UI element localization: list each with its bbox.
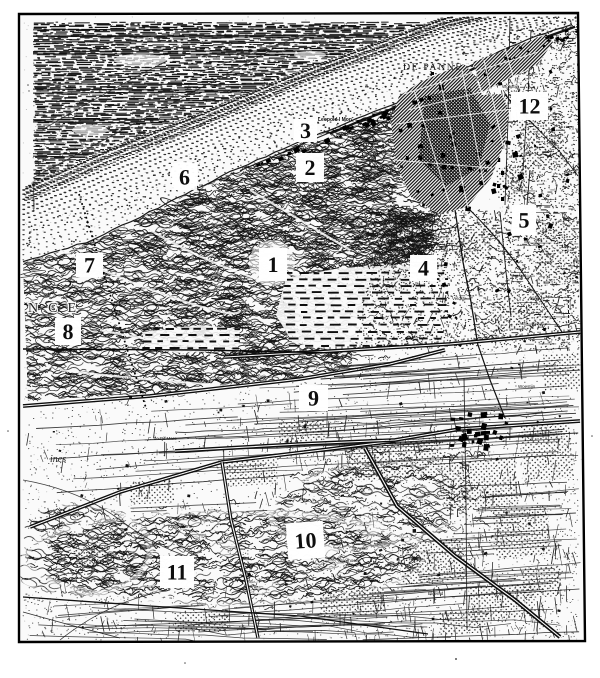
svg-text:8: 8 xyxy=(62,319,73,344)
svg-text:7: 7 xyxy=(84,252,95,277)
svg-text:1: 1 xyxy=(267,252,278,277)
svg-text:12: 12 xyxy=(518,93,540,118)
svg-text:4: 4 xyxy=(418,255,429,280)
svg-text:6: 6 xyxy=(179,164,190,189)
svg-text:9: 9 xyxy=(308,385,319,410)
svg-text:2: 2 xyxy=(304,155,315,180)
svg-text:5: 5 xyxy=(518,207,529,232)
svg-text:11: 11 xyxy=(167,559,188,584)
svg-text:3: 3 xyxy=(300,118,311,143)
svg-text:10: 10 xyxy=(294,527,318,553)
